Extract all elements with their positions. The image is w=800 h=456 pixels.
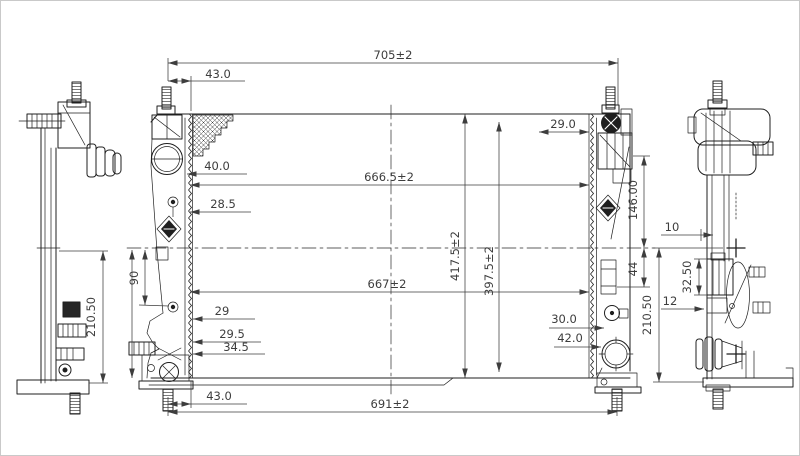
- dim-overall-width-top: 705±2: [168, 48, 618, 105]
- centerline-cross-upper: [727, 239, 745, 257]
- dim-label: 28.5: [210, 197, 236, 211]
- side-fitting-lower: [56, 348, 84, 360]
- top-mounting-stud: [67, 82, 86, 107]
- tank-profile-body: [37, 128, 60, 383]
- core-hatching: [193, 115, 233, 156]
- dim-core-width-lower: 667±2: [190, 277, 589, 292]
- bottom-foot-bracket: [17, 380, 89, 414]
- dim-top-right-offset: 29.0: [539, 117, 589, 132]
- right-foot-bracket: [595, 373, 641, 411]
- manufacturer-diamond-logo-icon: [596, 195, 620, 221]
- dim-label: 40.0: [204, 159, 230, 173]
- dim-label: 397.5±2: [482, 246, 496, 296]
- technical-drawing-canvas: 210.50: [0, 0, 800, 456]
- upper-bracket-body: [688, 109, 773, 175]
- dim-overall-width-bottom: 691±2: [168, 397, 617, 416]
- dim-label: 210.50: [84, 297, 98, 337]
- dim-overall-height: 417.5±2: [448, 114, 465, 378]
- top-mounting-stud: [708, 81, 727, 115]
- dim-label: 210.50: [640, 295, 654, 335]
- dim-label: 666.5±2: [364, 170, 414, 184]
- front-view: [127, 87, 655, 411]
- dim-label: 29.5: [219, 327, 245, 341]
- dim-lower-left-offsets: 29 29.5 34.5: [193, 304, 265, 354]
- side-fitting-upper: [58, 324, 86, 337]
- left-side-view: [17, 82, 121, 414]
- left-tank: [129, 87, 193, 411]
- upper-screw: [168, 197, 178, 207]
- dim-label: 667±2: [368, 277, 407, 291]
- dim-label: 691±2: [371, 397, 410, 411]
- dim-label: 417.5±2: [448, 231, 462, 281]
- dim-right-tank-lower-offset: 44: [617, 248, 650, 287]
- dim-label: 146.00: [626, 180, 640, 220]
- right-side-view: [688, 81, 793, 409]
- dim-left-bracket-span: 90: [127, 250, 169, 378]
- dim-pin-offset: 10: [661, 220, 713, 241]
- dim-core-height: 397.5±2: [482, 122, 499, 372]
- sensor-port: [605, 306, 629, 321]
- inlet-port: [152, 144, 183, 175]
- dim-label: 90: [127, 271, 141, 286]
- dim-label: 12: [663, 294, 678, 308]
- lower-screw: [168, 302, 178, 312]
- manufacturer-diamond-logo-icon: [157, 216, 181, 242]
- dim-sensor-port-diameter: 30.0: [549, 312, 604, 328]
- dim-label: 34.5: [223, 340, 249, 354]
- dim-label: 29: [215, 304, 230, 318]
- radiator-drawing: 210.50: [1, 1, 800, 456]
- side-stub-upper: [749, 267, 765, 277]
- side-stub-lower: [753, 302, 770, 313]
- clamp-block: [63, 302, 80, 317]
- dim-label: 43.0: [206, 389, 232, 403]
- dim-label: 30.0: [551, 312, 577, 326]
- dim-bracket-height: 32.50: [680, 259, 707, 295]
- right-view-dimensions: 10 32.50 12 210.50: [640, 220, 723, 382]
- right-tank: [595, 87, 641, 411]
- outlet-port: [597, 337, 633, 378]
- dim-inlet-port-diameter: 40.0: [187, 159, 247, 174]
- front-view-dimensions: 705±2 43.0 29.0 666.5±2 40.0 28.5: [127, 48, 650, 416]
- dim-label: 10: [665, 220, 680, 234]
- drain-valve: [158, 348, 181, 382]
- dim-label: 29.0: [550, 117, 576, 131]
- filler-neck-stem: [606, 87, 615, 109]
- dim-top-left-offset: 43.0: [168, 67, 245, 111]
- dim-core-width-upper: 666.5±2: [190, 170, 589, 185]
- filler-cap: [602, 114, 621, 133]
- left-core-joint: [187, 114, 193, 378]
- dim-label: 42.0: [557, 331, 583, 345]
- bottom-step: [149, 378, 453, 385]
- dim-label: 43.0: [205, 67, 231, 81]
- elbow-pipe-flanges: [87, 144, 121, 177]
- drain-knob: [59, 364, 71, 376]
- dim-label: 705±2: [374, 48, 413, 62]
- right-core-joint: [590, 114, 596, 378]
- dim-label: 44: [626, 262, 640, 277]
- dim-label: 32.50: [680, 261, 694, 294]
- bottom-mounting-pin: [713, 389, 723, 409]
- dim-step-offset: 12: [661, 294, 704, 309]
- valve-body: [58, 102, 90, 148]
- bottom-foot-bracket: [703, 351, 793, 409]
- side-tab: [601, 260, 616, 294]
